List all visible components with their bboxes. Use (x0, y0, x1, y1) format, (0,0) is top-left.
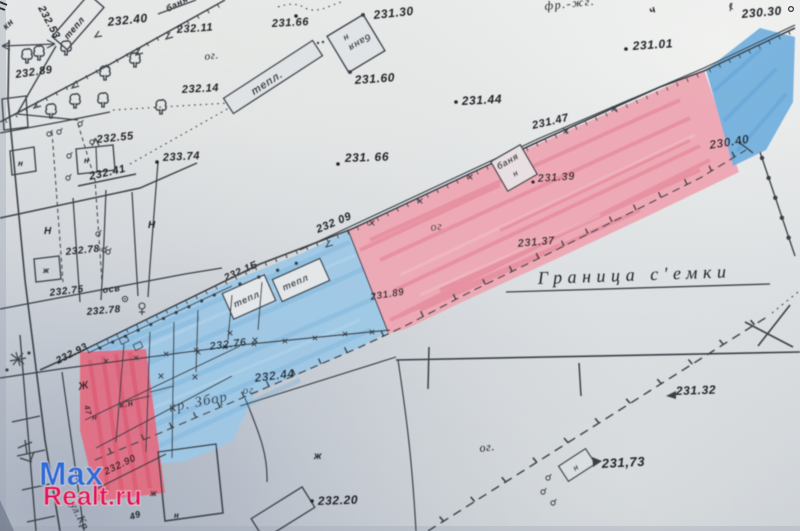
svg-text:232.20: 232.20 (317, 493, 359, 508)
svg-text:н: н (84, 156, 89, 165)
svg-text:231. 66: 231. 66 (344, 149, 390, 165)
svg-text:231.44: 231.44 (460, 92, 502, 108)
svg-text:231.66: 231.66 (271, 16, 310, 30)
svg-text:231.32: 231.32 (675, 383, 717, 398)
svg-text:ж: ж (42, 266, 50, 275)
svg-text:н: н (174, 511, 179, 520)
svg-text:231.60: 231.60 (353, 70, 395, 87)
svg-text:н: н (18, 159, 23, 168)
svg-text:232.14: 232.14 (181, 82, 220, 96)
svg-text:Н: Н (148, 220, 156, 231)
svg-text:Ж: Ж (76, 379, 90, 393)
svg-text:ж: ж (149, 488, 157, 498)
svg-text:Realt.ru: Realt.ru (43, 481, 142, 511)
svg-text:231,73: 231,73 (600, 454, 645, 471)
svg-text:Н: Н (44, 226, 52, 237)
svg-text:ог.: ог. (204, 49, 220, 63)
svg-text:ог.: ог. (478, 439, 495, 455)
svg-text:н: н (92, 413, 97, 422)
svg-text:ж: ж (313, 451, 322, 462)
svg-text:ог: ог (429, 218, 443, 234)
svg-text:ог.: ог. (242, 384, 257, 397)
svg-text:233.74: 233.74 (162, 150, 201, 164)
svg-text:231.01: 231.01 (631, 36, 673, 53)
